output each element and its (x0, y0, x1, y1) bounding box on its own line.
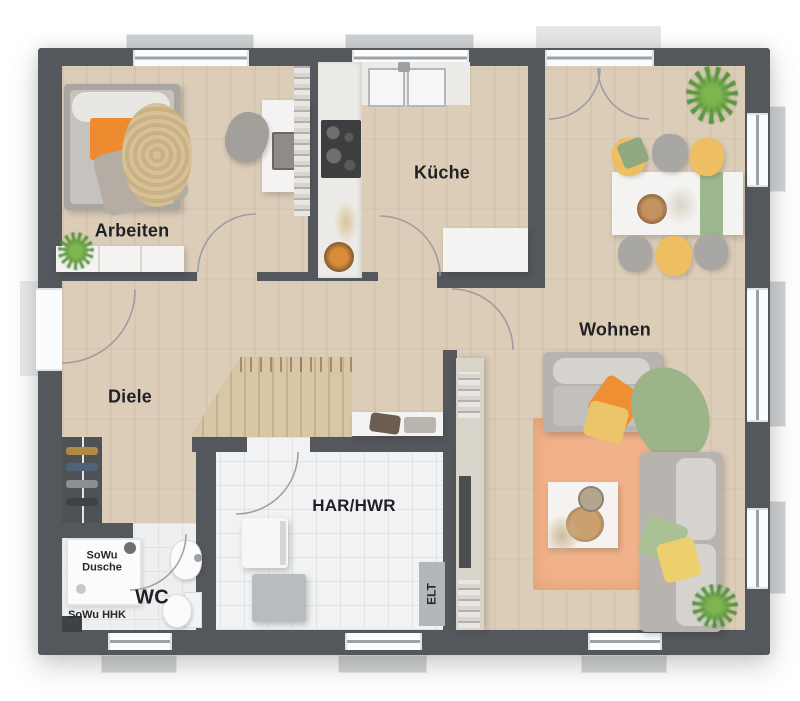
room-label-har-hwr: HAR/HWR (312, 496, 396, 516)
shower-label-line1: SoWu (82, 550, 122, 562)
room-label-wc: WC (135, 587, 169, 610)
elt-label: ELT (425, 583, 438, 605)
shower-label: SoWu Dusche (82, 550, 122, 575)
door-swing-arcs (0, 0, 800, 701)
heater-label: SoWu HHK (68, 609, 126, 621)
floor-plan: Arbeiten Küche Wohnen Diele HAR/HWR WC S… (0, 0, 800, 701)
room-label-wohnen: Wohnen (579, 320, 651, 341)
room-label-kueche: Küche (414, 163, 470, 184)
room-label-diele: Diele (108, 387, 152, 408)
room-label-arbeiten: Arbeiten (95, 221, 170, 242)
shower-label-line2: Dusche (82, 562, 122, 574)
